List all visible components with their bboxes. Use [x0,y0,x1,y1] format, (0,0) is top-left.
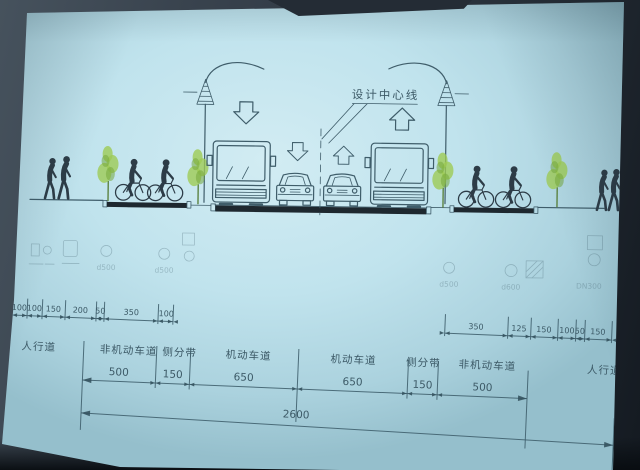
bus-icon [364,143,433,207]
curb [187,202,191,209]
dim-value: 100 [27,304,43,314]
lane-label-median-left: 侧分带 [162,345,197,359]
dim-value: 500 [108,366,129,379]
curb [450,206,454,213]
dim-value: 50 [95,306,106,315]
pipe-label: d500 [96,263,115,272]
dim-value: 100 [559,326,575,336]
dim-value: 350 [123,308,139,318]
lane-label-sidewalk-left: 人行道 [21,339,56,353]
dim-value: 150 [536,325,552,335]
tree-icon [187,149,209,204]
sidewalk-line-right [538,207,604,208]
lane-label-motor-left: 机动车道 [225,348,272,363]
dim-value: 150 [162,368,183,381]
dim-value: 150 [412,379,433,392]
tree-icon [546,152,568,207]
lane-label-sidewalk-right: 人行道 [587,363,622,377]
pipe-label: DN300 [576,281,602,290]
lane-label-nonmotor-left: 非机动车道 [100,343,158,358]
car-icon [276,173,313,205]
tree-icon [432,152,454,207]
dim-value: 200 [72,305,88,315]
pedestrian-icon [609,169,620,210]
dim-value: 150 [590,327,606,337]
lane-label-motor-right: 机动车道 [330,352,377,367]
lane-label-nonmotor-right: 非机动车道 [458,358,516,373]
bike-lane-surface-left [107,202,187,208]
street-elevation: 设计中心线 d500 d500 d500 d600 [29,58,622,293]
center-line-label: 设计中心线 [352,87,420,102]
dim-value: 50 [575,327,586,336]
ground-lines [30,199,604,217]
bus-icon [206,141,275,205]
dim-value: 100 [158,309,174,319]
dim-value: 350 [468,322,484,332]
total-dimension-line [81,413,614,445]
pedestrian-icon [45,158,56,198]
pipe-label: d500 [439,280,458,289]
sidewalk-line-left [30,199,103,200]
up-arrow-icon [333,146,354,164]
cyclist-icon [115,159,151,201]
curb [534,207,538,214]
up-arrow-icon [390,108,415,130]
pedestrian-icon [59,156,71,198]
projected-slide: 设计中心线 d500 d500 d500 d600 [0,0,640,470]
dimension-line [82,380,527,399]
dimension-block: 100 100 150 200 50 350 100 350 125 150 1… [1,296,623,470]
dim-value: 100 [12,303,28,313]
dim-value: 500 [472,381,493,394]
road-cross-section-drawing: 设计中心线 d500 d500 d500 d600 [0,0,640,470]
utility-symbols: d500 d500 d500 d600 DN300 [29,228,603,293]
car-icon [323,174,360,206]
pedestrian-icon [597,170,608,210]
lane-label-median-right: 侧分带 [406,355,441,369]
dim-value: 650 [233,371,254,384]
curb [103,200,107,207]
pipe-label: d500 [154,266,173,275]
down-arrow-icon [234,102,259,124]
dim-value: 125 [511,324,527,334]
cyclist-icon [495,166,531,208]
dim-value: 650 [342,376,363,389]
pipe-label: d600 [501,282,520,291]
design-center-line [320,129,321,215]
dim-value: 150 [46,304,62,314]
dim-total: 2600 [283,408,310,421]
down-arrow-icon [287,142,308,160]
cyclist-icon [458,165,494,207]
cyclist-icon [147,159,183,201]
